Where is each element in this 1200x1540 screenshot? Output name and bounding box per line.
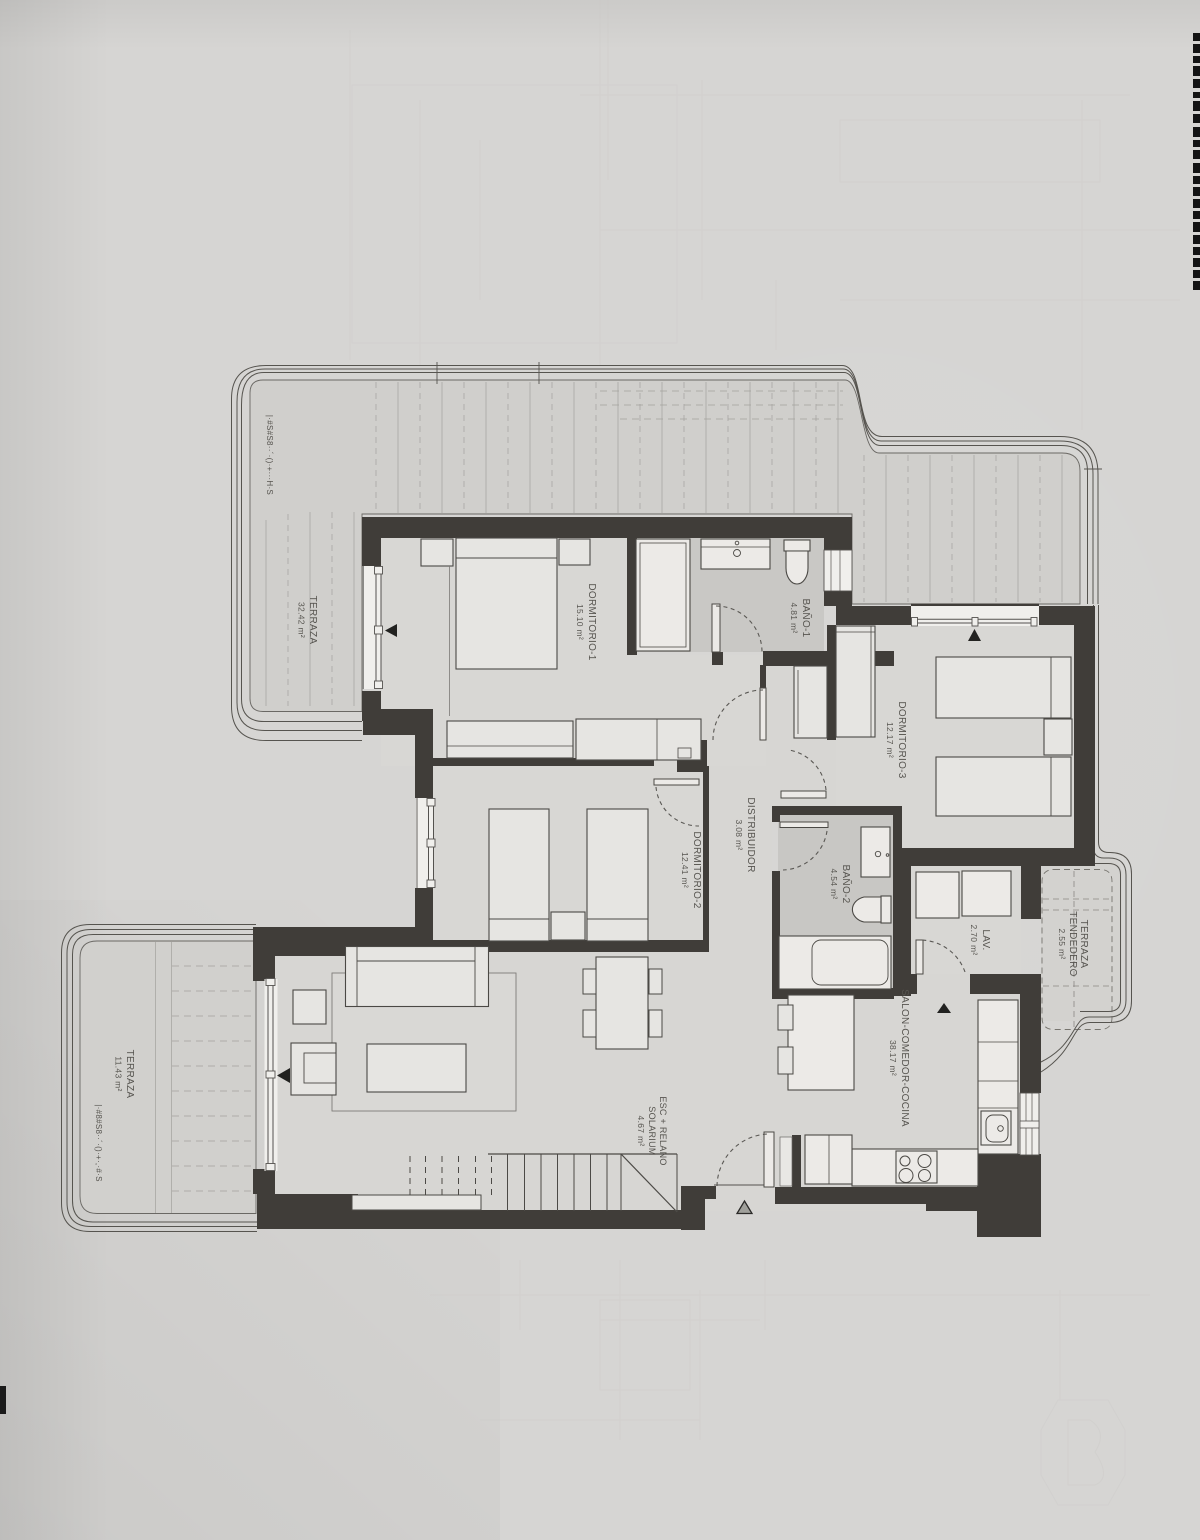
svg-text:|·#8#S8··´·()·+·,·#·S: |·#8#S8··´·()·+·,·#·S: [94, 1104, 103, 1182]
svg-text:TERRAZA32.42 m²: TERRAZA32.42 m²: [297, 596, 319, 645]
svg-text:BAÑO-24.54 m²: BAÑO-24.54 m²: [829, 864, 853, 903]
svg-text:TERRAZA11.43 m²: TERRAZA11.43 m²: [114, 1050, 136, 1099]
svg-text:|·#S#S8··´·()·+···H·S: |·#S#S8··´·()·+···H·S: [265, 415, 274, 495]
svg-text:BAÑO-14.81 m²: BAÑO-14.81 m²: [789, 598, 813, 637]
